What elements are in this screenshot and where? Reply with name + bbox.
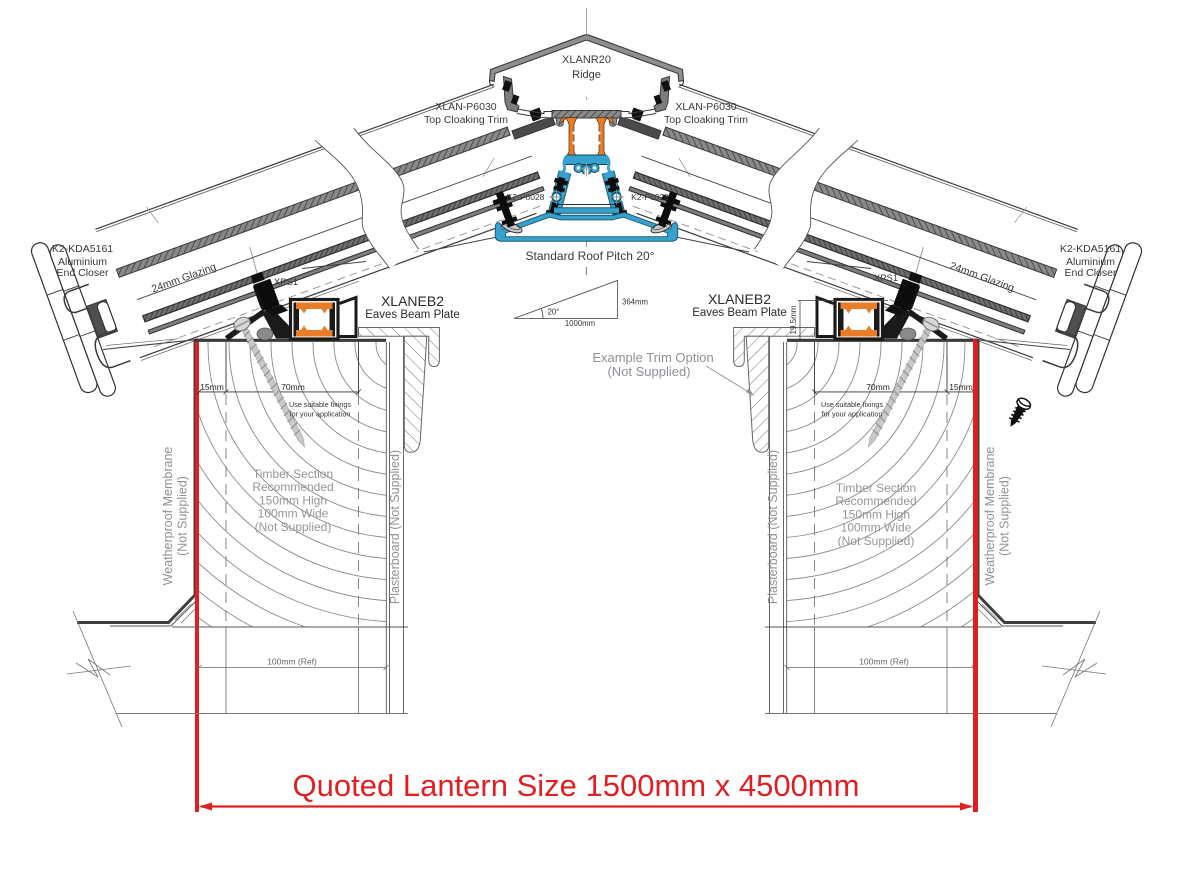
svg-text:XLANEB2: XLANEB2: [381, 293, 444, 309]
svg-text:150mm High: 150mm High: [842, 507, 910, 521]
svg-text:K2-KDA5161: K2-KDA5161: [1060, 243, 1121, 255]
svg-text:100mm Wide: 100mm Wide: [841, 521, 912, 535]
svg-text:XPS1: XPS1: [274, 277, 298, 288]
svg-text:70mm: 70mm: [866, 382, 890, 392]
svg-text:1000mm: 1000mm: [565, 319, 595, 328]
svg-text:Ridge: Ridge: [572, 69, 601, 81]
svg-text:15mm: 15mm: [200, 382, 224, 392]
svg-text:(Not Supplied): (Not Supplied): [998, 476, 1012, 556]
svg-text:for your application: for your application: [822, 410, 883, 419]
svg-text:Standard Roof Pitch 20°: Standard Roof Pitch 20°: [526, 249, 655, 263]
svg-text:Weatherproof Membrane: Weatherproof Membrane: [161, 447, 175, 586]
svg-text:15mm: 15mm: [949, 382, 973, 392]
svg-text:XPS1: XPS1: [874, 273, 898, 284]
svg-text:Use suitable fixings: Use suitable fixings: [821, 400, 883, 409]
svg-text:(Not Supplied): (Not Supplied): [255, 520, 332, 534]
svg-text:364mm: 364mm: [622, 298, 648, 307]
svg-text:Top Cloaking Trim: Top Cloaking Trim: [664, 114, 748, 126]
svg-text:Recommended: Recommended: [252, 480, 333, 494]
svg-text:XLANR20: XLANR20: [562, 54, 611, 66]
svg-text:Eaves Beam Plate: Eaves Beam Plate: [365, 309, 460, 321]
svg-text:for your application: for your application: [290, 410, 351, 419]
svg-text:Timber Section: Timber Section: [836, 481, 916, 495]
svg-text:End Closer: End Closer: [57, 267, 109, 279]
svg-text:Timber Section: Timber Section: [253, 467, 333, 481]
svg-text:100mm (Ref): 100mm (Ref): [267, 657, 317, 667]
svg-text:(Not Supplied): (Not Supplied): [176, 476, 190, 556]
svg-text:XLANEB2: XLANEB2: [708, 291, 771, 307]
svg-text:Quoted Lantern Size 1500mm x 4: Quoted Lantern Size 1500mm x 4500mm: [293, 768, 860, 803]
svg-text:Weatherproof Membrane: Weatherproof Membrane: [983, 447, 997, 586]
svg-text:Eaves Beam Plate: Eaves Beam Plate: [692, 307, 787, 319]
svg-text:20°: 20°: [548, 308, 560, 317]
svg-text:(Not Supplied): (Not Supplied): [607, 364, 690, 379]
svg-text:Use suitable fixings: Use suitable fixings: [289, 400, 351, 409]
svg-text:Top Cloaking Trim: Top Cloaking Trim: [424, 114, 508, 126]
svg-text:150mm High: 150mm High: [259, 493, 327, 507]
svg-text:K2-KDA5161: K2-KDA5161: [52, 243, 113, 255]
svg-text:100mm (Ref): 100mm (Ref): [859, 657, 909, 667]
svg-text:XLAN-P6030: XLAN-P6030: [435, 101, 496, 113]
svg-text:Recommended: Recommended: [835, 494, 916, 508]
svg-text:End Closer: End Closer: [1065, 267, 1117, 279]
svg-text:19.5mm: 19.5mm: [789, 305, 798, 334]
svg-text:Example Trim Option: Example Trim Option: [592, 350, 713, 365]
svg-text:XLAN-P6030: XLAN-P6030: [675, 101, 736, 113]
svg-text:100mm Wide: 100mm Wide: [258, 507, 329, 521]
svg-text:Plasterboard (Not Supplied): Plasterboard (Not Supplied): [766, 450, 780, 604]
svg-text:K2-P6028: K2-P6028: [631, 192, 669, 202]
svg-text:(Not Supplied): (Not Supplied): [838, 534, 915, 548]
svg-text:Plasterboard (Not Supplied): Plasterboard (Not Supplied): [388, 450, 402, 604]
svg-text:70mm: 70mm: [281, 382, 305, 392]
svg-text:K2-P6028: K2-P6028: [507, 192, 545, 202]
